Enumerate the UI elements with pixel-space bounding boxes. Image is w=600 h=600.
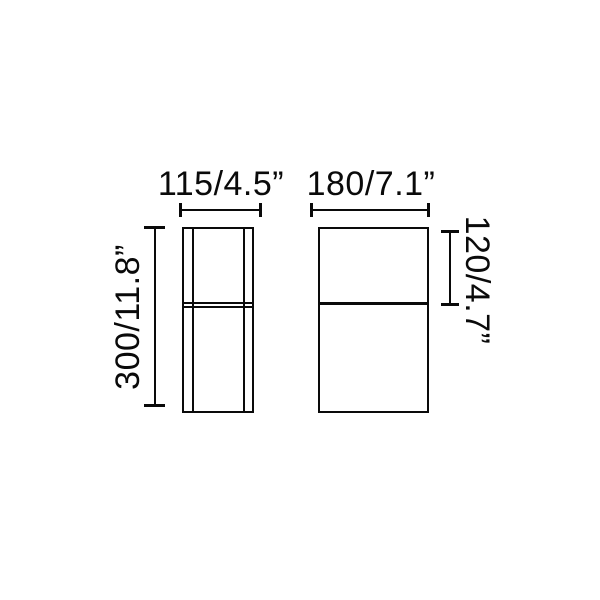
- front-width-dim-line: [311, 209, 429, 211]
- side-width-dim-tick-left: [179, 203, 182, 217]
- upper-height-dim-line: [449, 231, 451, 306]
- dimension-diagram: 115/4.5” 180/7.1” 300/11.8” 120/4.7”: [0, 0, 600, 600]
- front-view-outline: [318, 227, 429, 413]
- overall-height-dim-label: 300/11.8”: [111, 244, 145, 390]
- front-width-dim-tick-left: [310, 203, 313, 217]
- upper-height-dim-label: 120/4.7”: [460, 216, 494, 345]
- overall-height-dim-tick-top: [144, 226, 165, 229]
- front-width-dim-label: 180/7.1”: [291, 167, 451, 201]
- upper-height-dim-tick-top: [441, 230, 459, 233]
- side-width-dim-label: 115/4.5”: [141, 167, 301, 201]
- side-view-inner-left-line: [192, 229, 194, 411]
- overall-height-dim-line: [154, 227, 156, 407]
- front-width-dim-tick-right: [427, 203, 430, 217]
- side-width-dim-line: [180, 209, 261, 211]
- side-view-seam-bottom-line: [184, 306, 252, 308]
- upper-height-dim-tick-bottom: [441, 303, 459, 306]
- overall-height-dim-tick-bottom: [144, 404, 165, 407]
- front-view-divider-line: [320, 302, 427, 305]
- side-view-inner-right-line: [243, 229, 245, 411]
- side-view-seam-top-line: [184, 302, 252, 304]
- side-width-dim-tick-right: [259, 203, 262, 217]
